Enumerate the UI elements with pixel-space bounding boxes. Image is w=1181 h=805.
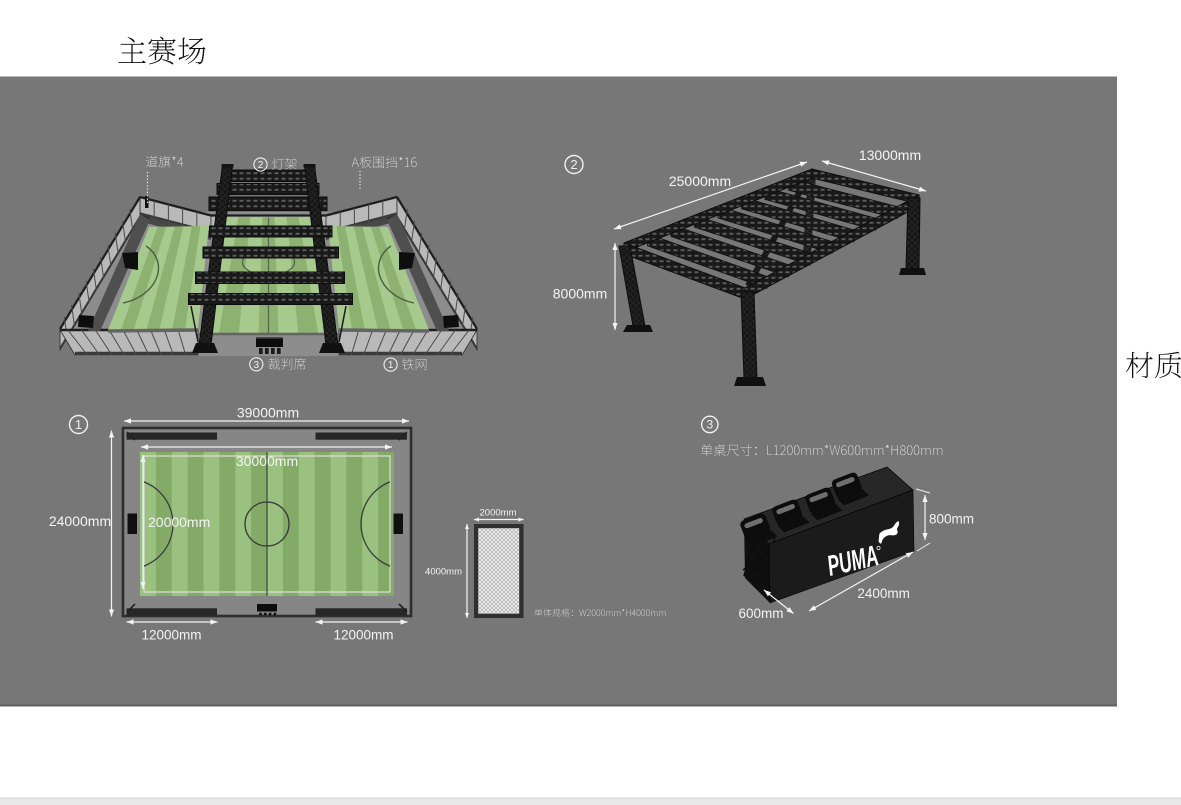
svg-text:30000mm: 30000mm xyxy=(236,453,298,469)
svg-text:12000mm: 12000mm xyxy=(333,628,393,643)
svg-text:12000mm: 12000mm xyxy=(141,628,201,643)
svg-text:25000mm: 25000mm xyxy=(669,173,731,189)
svg-text:24000mm: 24000mm xyxy=(49,513,111,529)
svg-text:2: 2 xyxy=(258,160,264,171)
svg-text:3: 3 xyxy=(706,418,713,432)
svg-text:2: 2 xyxy=(570,157,577,172)
svg-text:20000mm: 20000mm xyxy=(148,514,210,530)
svg-text:3: 3 xyxy=(254,360,260,371)
svg-text:2000mm: 2000mm xyxy=(480,508,517,519)
svg-text:39000mm: 39000mm xyxy=(237,405,299,421)
svg-text:1: 1 xyxy=(75,417,82,432)
svg-text:1: 1 xyxy=(388,360,394,371)
svg-text:600mm: 600mm xyxy=(738,606,783,621)
svg-text:4000mm: 4000mm xyxy=(425,567,462,578)
svg-text:2400mm: 2400mm xyxy=(857,586,910,601)
svg-text:800mm: 800mm xyxy=(929,512,974,527)
svg-text:8000mm: 8000mm xyxy=(553,286,607,302)
svg-text:13000mm: 13000mm xyxy=(859,147,921,163)
